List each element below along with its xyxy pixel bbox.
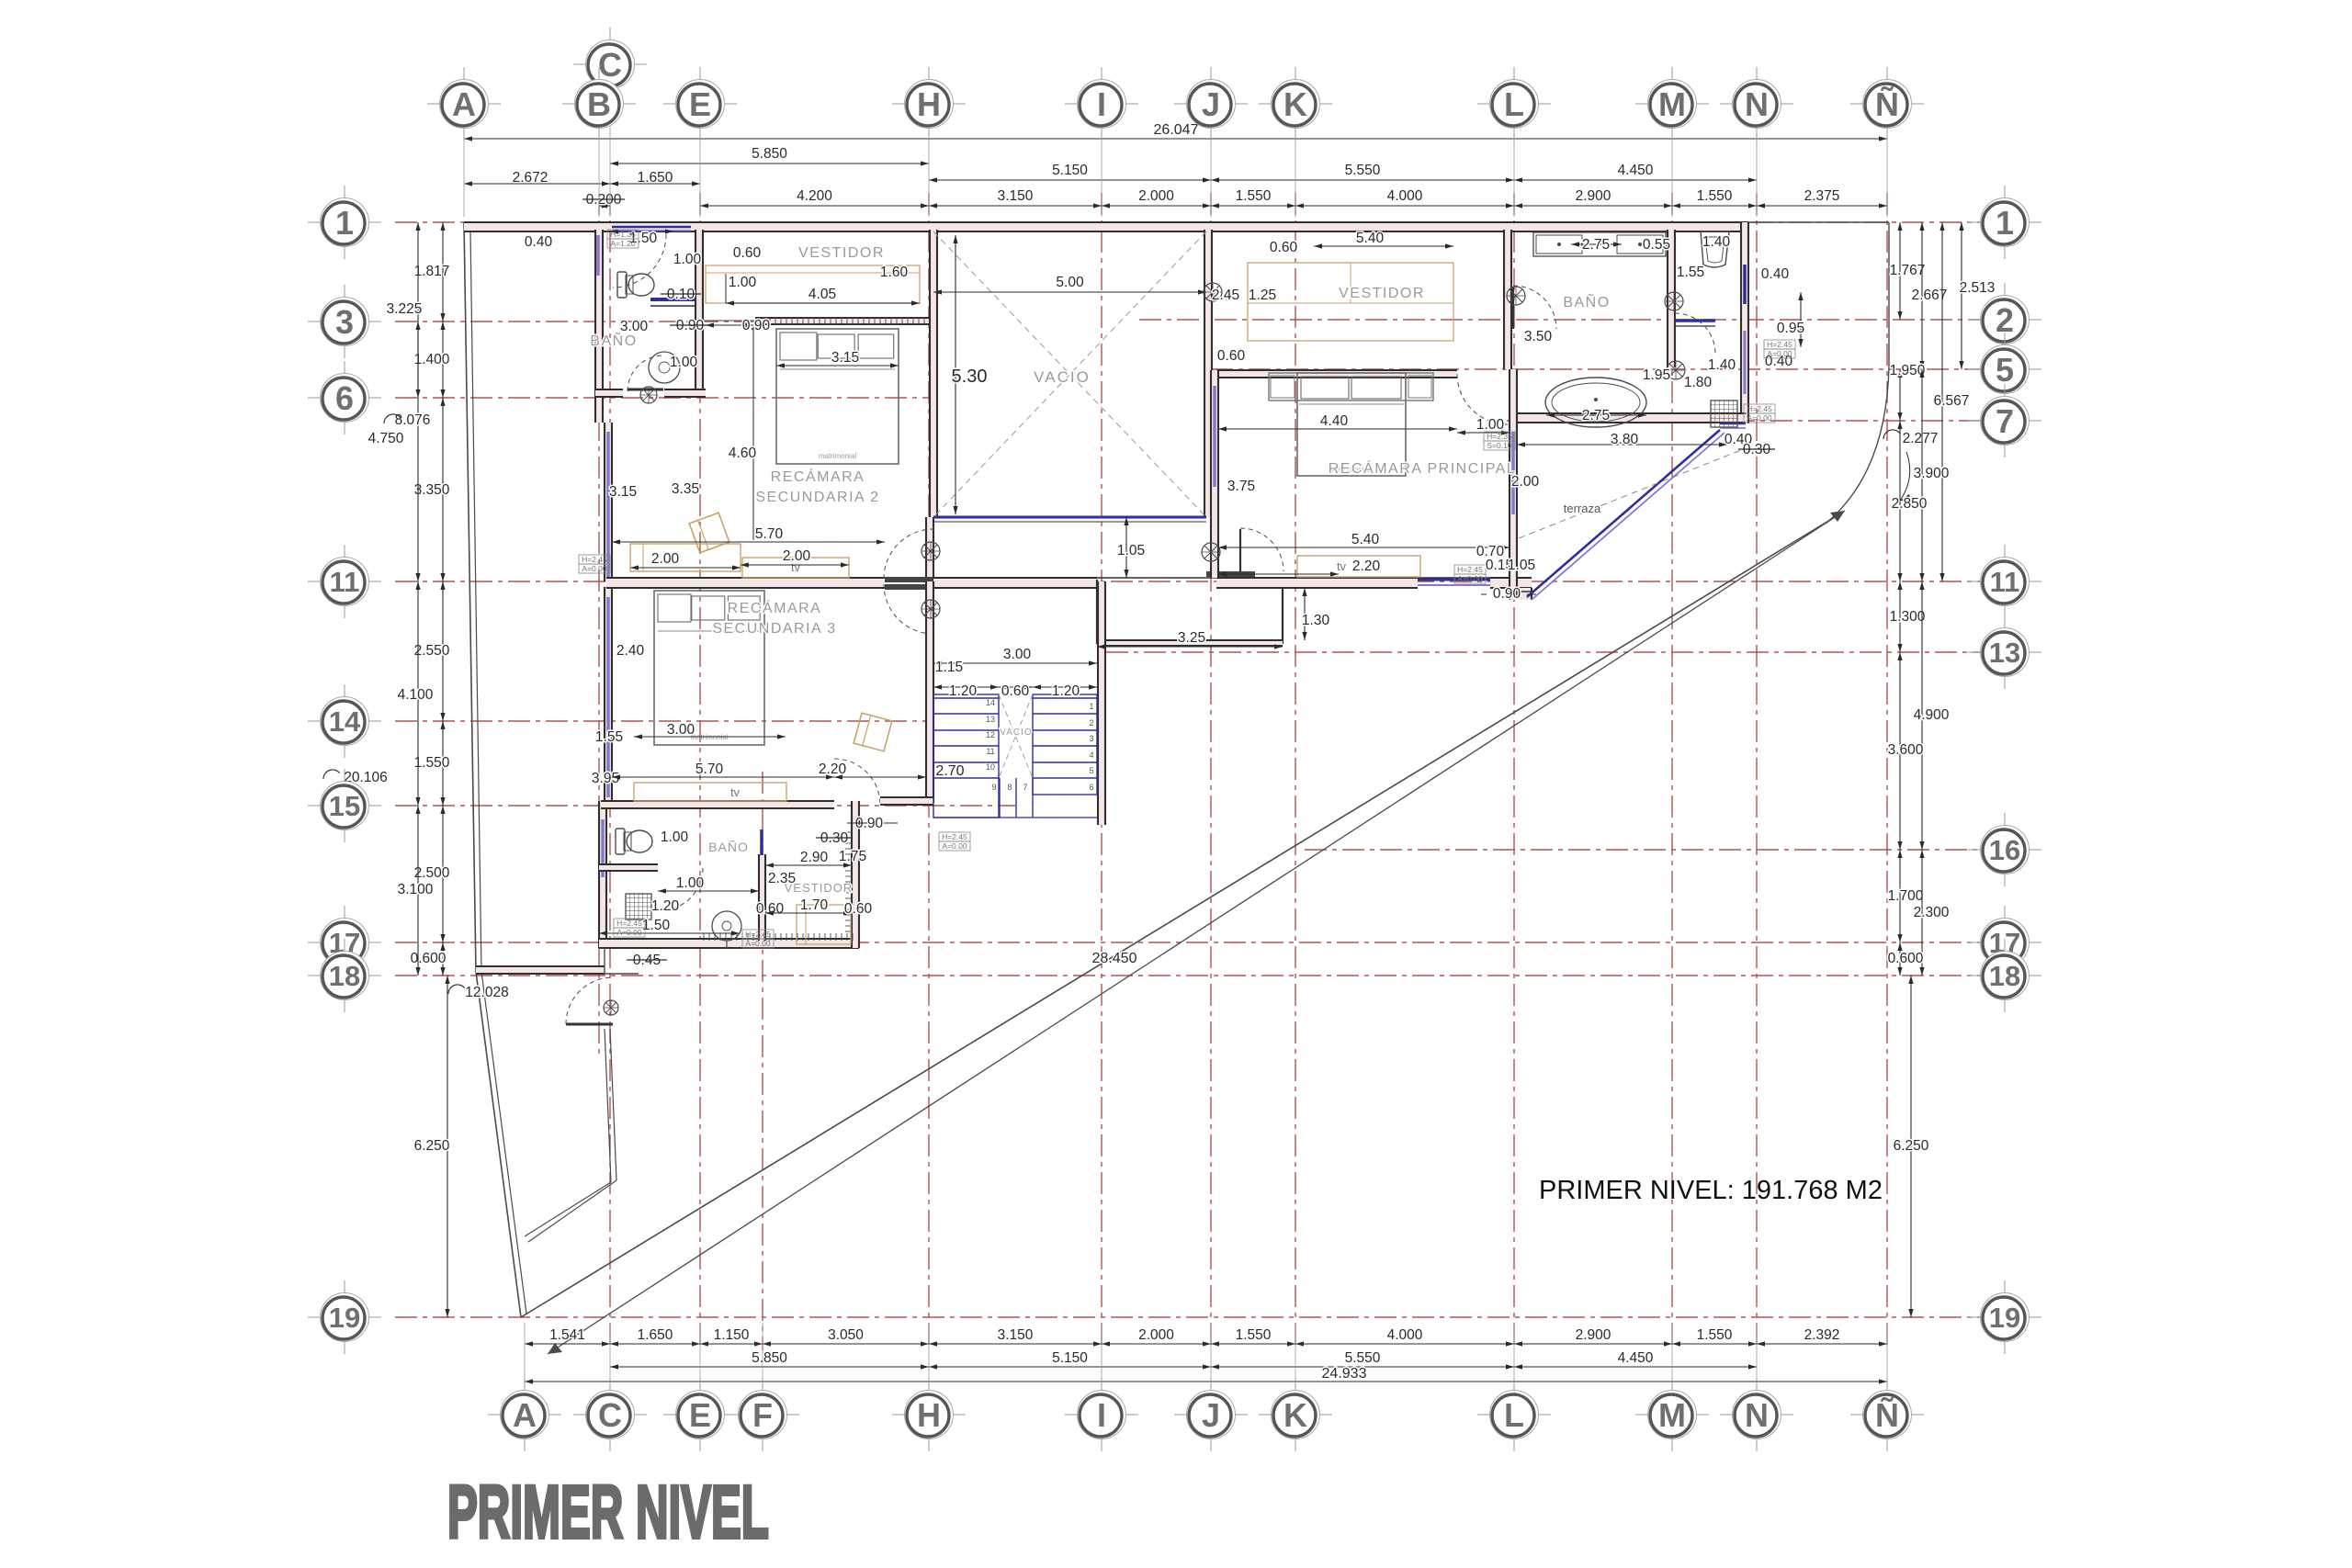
svg-text:1.00: 1.00 — [670, 355, 698, 370]
svg-text:N: N — [1745, 1396, 1769, 1434]
svg-text:1.550: 1.550 — [1697, 188, 1733, 204]
svg-text:I: I — [1097, 1396, 1106, 1434]
svg-text:E: E — [689, 85, 711, 123]
svg-text:H=1.35: H=1.35 — [610, 230, 636, 239]
svg-text:7: 7 — [1023, 783, 1027, 792]
svg-text:A=0.00: A=0.00 — [1747, 413, 1771, 423]
svg-text:7: 7 — [1996, 402, 2014, 440]
svg-text:9: 9 — [991, 783, 996, 792]
svg-text:1.00: 1.00 — [673, 252, 702, 267]
svg-text:0.60: 0.60 — [1270, 240, 1298, 255]
svg-text:3.00: 3.00 — [667, 722, 695, 738]
svg-text:5.850: 5.850 — [752, 1350, 787, 1366]
svg-text:19: 19 — [329, 1302, 360, 1334]
svg-text:1.15: 1.15 — [935, 660, 963, 675]
svg-text:1.817: 1.817 — [414, 264, 450, 279]
svg-text:2.277: 2.277 — [1903, 431, 1939, 446]
svg-text:RECÁMARA: RECÁMARA — [728, 599, 822, 616]
svg-text:H=2.35: H=2.35 — [1487, 432, 1512, 441]
svg-text:1.650: 1.650 — [638, 170, 673, 186]
svg-text:0.40: 0.40 — [525, 234, 553, 250]
svg-text:4.000: 4.000 — [1387, 188, 1423, 204]
svg-text:2.75: 2.75 — [1582, 237, 1610, 253]
svg-text:2.00: 2.00 — [1511, 474, 1540, 490]
svg-text:1.00: 1.00 — [661, 829, 689, 845]
svg-text:2.850: 2.850 — [1892, 496, 1928, 512]
svg-text:4.450: 4.450 — [1618, 163, 1654, 178]
svg-text:3.350: 3.350 — [414, 482, 450, 498]
svg-text:1.550: 1.550 — [414, 755, 450, 771]
svg-text:K: K — [1283, 1396, 1307, 1434]
svg-text:5.00: 5.00 — [1056, 275, 1084, 290]
svg-text:2.90: 2.90 — [800, 850, 829, 865]
svg-text:1.95: 1.95 — [1643, 367, 1670, 383]
svg-text:11: 11 — [1990, 566, 2020, 598]
svg-text:24.933: 24.933 — [1322, 1366, 1367, 1382]
svg-text:1: 1 — [1996, 204, 2014, 242]
svg-text:0.600: 0.600 — [1888, 951, 1924, 966]
svg-text:3: 3 — [335, 303, 354, 341]
svg-text:19: 19 — [1989, 1302, 2020, 1334]
svg-text:3.95: 3.95 — [592, 771, 619, 786]
svg-text:2: 2 — [1089, 718, 1093, 728]
svg-text:5.850: 5.850 — [752, 146, 787, 162]
svg-text:C: C — [598, 46, 622, 84]
svg-text:5: 5 — [1089, 766, 1093, 775]
svg-text:2.000: 2.000 — [1138, 188, 1174, 204]
svg-text:3.50: 3.50 — [1524, 329, 1553, 344]
svg-text:2.000: 2.000 — [1138, 1327, 1174, 1343]
svg-text:8: 8 — [1007, 783, 1012, 792]
svg-text:F: F — [752, 1396, 773, 1434]
svg-text:4: 4 — [1089, 750, 1093, 760]
svg-text:1.300: 1.300 — [1890, 609, 1926, 625]
svg-text:1.60: 1.60 — [880, 265, 909, 280]
svg-text:3: 3 — [1089, 734, 1093, 743]
svg-text:tv: tv — [730, 785, 741, 799]
svg-text:H=2.45: H=2.45 — [942, 832, 967, 841]
svg-text:4.100: 4.100 — [398, 687, 434, 703]
svg-text:3.050: 3.050 — [828, 1327, 864, 1343]
svg-text:1: 1 — [335, 204, 354, 242]
svg-text:SECUNDARIA 3: SECUNDARIA 3 — [712, 621, 836, 637]
svg-text:2.40: 2.40 — [616, 643, 645, 659]
svg-text:2.20: 2.20 — [819, 761, 847, 777]
svg-text:1.75: 1.75 — [839, 849, 866, 864]
svg-text:0.60: 0.60 — [844, 901, 873, 917]
svg-text:H=2.45: H=2.45 — [745, 930, 771, 939]
svg-text:1.05: 1.05 — [1117, 543, 1145, 558]
svg-text:E: E — [689, 1396, 711, 1434]
svg-text:6.250: 6.250 — [414, 1138, 450, 1154]
svg-text:2.550: 2.550 — [414, 643, 450, 659]
svg-text:0.90: 0.90 — [1493, 586, 1521, 602]
svg-text:VACIO: VACIO — [1000, 728, 1032, 738]
svg-text:2.900: 2.900 — [1576, 188, 1611, 204]
svg-text:A=0.00: A=0.00 — [582, 564, 606, 573]
svg-text:8.076: 8.076 — [395, 412, 431, 428]
svg-text:5.550: 5.550 — [1345, 163, 1381, 178]
svg-text:2.75: 2.75 — [1582, 408, 1610, 423]
svg-text:3.225: 3.225 — [387, 301, 423, 317]
svg-text:VESTIDOR: VESTIDOR — [798, 245, 885, 261]
svg-text:16: 16 — [1989, 834, 2020, 866]
svg-text:Ñ: Ñ — [1875, 1395, 1899, 1434]
svg-text:1.550: 1.550 — [1236, 188, 1272, 204]
svg-text:0.95: 0.95 — [1777, 321, 1804, 336]
svg-text:18: 18 — [1989, 960, 2020, 992]
svg-text:A=0.00: A=0.00 — [745, 939, 770, 948]
svg-text:2.35: 2.35 — [768, 871, 796, 886]
svg-text:3.00: 3.00 — [1003, 647, 1032, 662]
svg-text:H: H — [917, 1396, 941, 1434]
svg-text:L: L — [1504, 85, 1524, 123]
svg-text:1: 1 — [1089, 702, 1093, 711]
svg-text:1.00: 1.00 — [1476, 417, 1505, 433]
svg-text:H=2.45: H=2.45 — [1457, 565, 1483, 574]
svg-text:3.100: 3.100 — [398, 882, 434, 897]
svg-text:2.70: 2.70 — [935, 763, 964, 779]
svg-text:14: 14 — [986, 698, 995, 707]
svg-text:H: H — [917, 85, 941, 123]
svg-text:1.50: 1.50 — [642, 918, 671, 933]
svg-text:11: 11 — [330, 566, 360, 598]
svg-text:6.567: 6.567 — [1934, 393, 1970, 409]
svg-text:J: J — [1202, 85, 1220, 123]
svg-text:A: A — [452, 85, 476, 123]
svg-text:12.028: 12.028 — [465, 985, 508, 1000]
svg-text:1.700: 1.700 — [1888, 888, 1924, 904]
svg-text:3.600: 3.600 — [1888, 742, 1924, 758]
svg-text:4.750: 4.750 — [368, 431, 404, 446]
svg-text:1.400: 1.400 — [414, 352, 450, 367]
svg-text:0.60: 0.60 — [733, 245, 762, 261]
svg-text:1.80: 1.80 — [1684, 375, 1713, 390]
svg-text:I: I — [1097, 85, 1106, 123]
svg-text:3.80: 3.80 — [1611, 432, 1639, 447]
svg-text:6: 6 — [1089, 783, 1093, 792]
svg-text:2.300: 2.300 — [1914, 905, 1950, 920]
svg-text:2.45: 2.45 — [1212, 288, 1239, 303]
svg-text:Ñ: Ñ — [1875, 85, 1899, 123]
svg-text:0.60: 0.60 — [1001, 683, 1030, 699]
svg-text:5.40: 5.40 — [1356, 231, 1385, 246]
svg-text:1.00: 1.00 — [729, 275, 757, 290]
svg-text:3.15: 3.15 — [831, 350, 859, 366]
svg-text:13: 13 — [986, 715, 995, 724]
svg-text:4.000: 4.000 — [1387, 1327, 1423, 1343]
svg-text:H=2.45: H=2.45 — [582, 555, 607, 564]
svg-text:N: N — [1745, 85, 1769, 123]
svg-text:26.047: 26.047 — [1154, 122, 1199, 138]
svg-text:A=0.00: A=0.00 — [616, 928, 641, 937]
svg-text:0.90: 0.90 — [742, 318, 771, 333]
svg-text:2.00: 2.00 — [651, 551, 680, 567]
svg-text:4.40: 4.40 — [1320, 413, 1349, 429]
svg-text:1.40: 1.40 — [1708, 357, 1736, 373]
svg-text:K: K — [1283, 85, 1307, 123]
svg-text:M: M — [1658, 1396, 1686, 1434]
svg-text:1.550: 1.550 — [1697, 1327, 1733, 1343]
svg-text:1.55: 1.55 — [1677, 265, 1704, 280]
svg-text:5.70: 5.70 — [755, 526, 784, 542]
svg-text:0.55: 0.55 — [1643, 237, 1670, 253]
svg-text:1.20: 1.20 — [1052, 683, 1080, 699]
svg-text:18: 18 — [329, 960, 360, 992]
svg-text:1.767: 1.767 — [1890, 263, 1926, 278]
svg-text:0.60: 0.60 — [1217, 348, 1246, 364]
svg-text:H=2.45: H=2.45 — [1747, 404, 1772, 413]
svg-text:SECUNDARIA 2: SECUNDARIA 2 — [755, 490, 879, 505]
svg-text:1.25: 1.25 — [1249, 288, 1276, 303]
svg-text:4.450: 4.450 — [1618, 1350, 1654, 1366]
svg-text:1.20: 1.20 — [651, 898, 680, 914]
svg-text:2.392: 2.392 — [1804, 1327, 1840, 1343]
svg-text:2.375: 2.375 — [1804, 188, 1840, 204]
svg-text:3.150: 3.150 — [998, 1327, 1034, 1343]
svg-text:2.900: 2.900 — [1576, 1327, 1611, 1343]
svg-text:A=1.20: A=1.20 — [610, 239, 635, 248]
svg-text:3.75: 3.75 — [1227, 479, 1255, 494]
svg-text:6: 6 — [335, 379, 354, 417]
svg-text:2.513: 2.513 — [1960, 280, 1996, 296]
svg-text:4.900: 4.900 — [1914, 707, 1950, 723]
svg-text:2.20: 2.20 — [1352, 558, 1381, 574]
svg-text:3.15: 3.15 — [609, 484, 637, 500]
svg-text:5.150: 5.150 — [1052, 163, 1088, 178]
svg-text:matrimonial: matrimonial — [819, 452, 857, 460]
svg-text:13: 13 — [1989, 637, 2020, 669]
svg-text:3.900: 3.900 — [1914, 466, 1950, 481]
svg-text:5.150: 5.150 — [1052, 1350, 1088, 1366]
svg-text:4.60: 4.60 — [729, 446, 757, 461]
svg-text:A=0.00: A=0.00 — [1457, 574, 1482, 583]
svg-text:14: 14 — [329, 705, 361, 738]
svg-text:1.70: 1.70 — [800, 897, 829, 913]
svg-text:1.05: 1.05 — [1508, 558, 1535, 573]
svg-text:RECÁMARA PRINCIPAL: RECÁMARA PRINCIPAL — [1329, 459, 1517, 477]
svg-text:VACIO: VACIO — [1034, 368, 1091, 386]
svg-text:4.200: 4.200 — [797, 188, 832, 204]
svg-text:10: 10 — [986, 762, 995, 772]
svg-text:M: M — [1658, 85, 1686, 123]
svg-text:C: C — [598, 1396, 622, 1434]
svg-text:H=2.45: H=2.45 — [1767, 340, 1792, 349]
svg-text:4.05: 4.05 — [808, 287, 836, 302]
svg-text:1.00: 1.00 — [676, 875, 705, 891]
svg-text:1.20: 1.20 — [949, 683, 978, 699]
svg-text:6.250: 6.250 — [1894, 1138, 1929, 1154]
svg-text:3.150: 3.150 — [998, 188, 1034, 204]
svg-text:28.450: 28.450 — [1092, 951, 1137, 966]
svg-text:2.00: 2.00 — [783, 548, 811, 564]
svg-text:tv: tv — [1337, 559, 1347, 573]
svg-text:5.550: 5.550 — [1345, 1350, 1381, 1366]
svg-text:2.500: 2.500 — [414, 865, 450, 881]
svg-text:1.550: 1.550 — [1236, 1327, 1272, 1343]
svg-text:B: B — [587, 85, 611, 123]
svg-text:J: J — [1202, 1396, 1220, 1434]
svg-text:1.150: 1.150 — [714, 1327, 750, 1343]
svg-text:5.70: 5.70 — [695, 761, 724, 777]
svg-text:S=0.10: S=0.10 — [1487, 441, 1511, 450]
svg-text:terraza: terraza — [1564, 502, 1601, 515]
svg-text:3.00: 3.00 — [620, 319, 649, 334]
svg-text:2.672: 2.672 — [513, 170, 548, 186]
svg-text:11: 11 — [986, 747, 994, 756]
svg-text:5.40: 5.40 — [1351, 532, 1380, 547]
svg-text:A=0.00: A=0.00 — [1767, 349, 1792, 358]
svg-text:BAÑO: BAÑO — [708, 840, 749, 854]
svg-text:1.541: 1.541 — [549, 1327, 585, 1343]
svg-text:3.25: 3.25 — [1178, 630, 1205, 646]
svg-text:0.600: 0.600 — [411, 951, 447, 966]
svg-text:5.30: 5.30 — [952, 367, 988, 387]
svg-text:1.40: 1.40 — [1702, 234, 1731, 250]
svg-text:A: A — [513, 1396, 537, 1434]
svg-text:PRIMER NIVEL: PRIMER NIVEL — [447, 1471, 769, 1554]
svg-text:1.55: 1.55 — [595, 729, 623, 745]
svg-text:12: 12 — [986, 730, 995, 739]
svg-text:15: 15 — [329, 790, 360, 822]
svg-text:3.35: 3.35 — [672, 481, 699, 497]
svg-text:0.40: 0.40 — [1761, 266, 1790, 282]
svg-text:BAÑO: BAÑO — [1563, 292, 1610, 310]
svg-text:A=0.00: A=0.00 — [942, 841, 967, 851]
svg-text:RECÁMARA: RECÁMARA — [771, 468, 865, 485]
svg-text:VESTIDOR: VESTIDOR — [1339, 286, 1425, 301]
svg-text:5: 5 — [1996, 351, 2014, 389]
svg-text:1.650: 1.650 — [638, 1327, 673, 1343]
svg-text:L: L — [1504, 1396, 1524, 1434]
svg-text:PRIMER NIVEL: 191.768 M2: PRIMER NIVEL: 191.768 M2 — [1539, 1176, 1883, 1205]
svg-text:H=2.45: H=2.45 — [616, 919, 642, 928]
svg-text:1.30: 1.30 — [1302, 613, 1330, 628]
